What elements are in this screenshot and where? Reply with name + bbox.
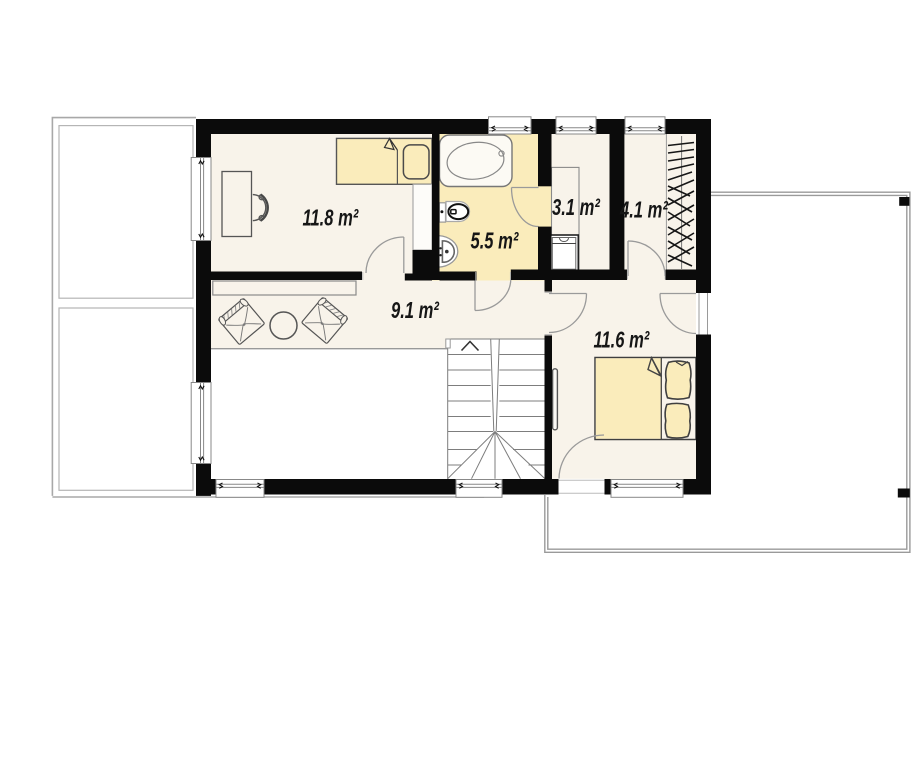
svg-text:4.1 m²: 4.1 m² — [619, 198, 669, 223]
svg-text:9.1 m²: 9.1 m² — [391, 298, 440, 323]
svg-text:11.8 m²: 11.8 m² — [303, 206, 360, 231]
svg-text:5.5 m²: 5.5 m² — [471, 229, 520, 254]
svg-text:3.1 m²: 3.1 m² — [552, 195, 601, 220]
svg-text:11.6 m²: 11.6 m² — [594, 328, 651, 353]
